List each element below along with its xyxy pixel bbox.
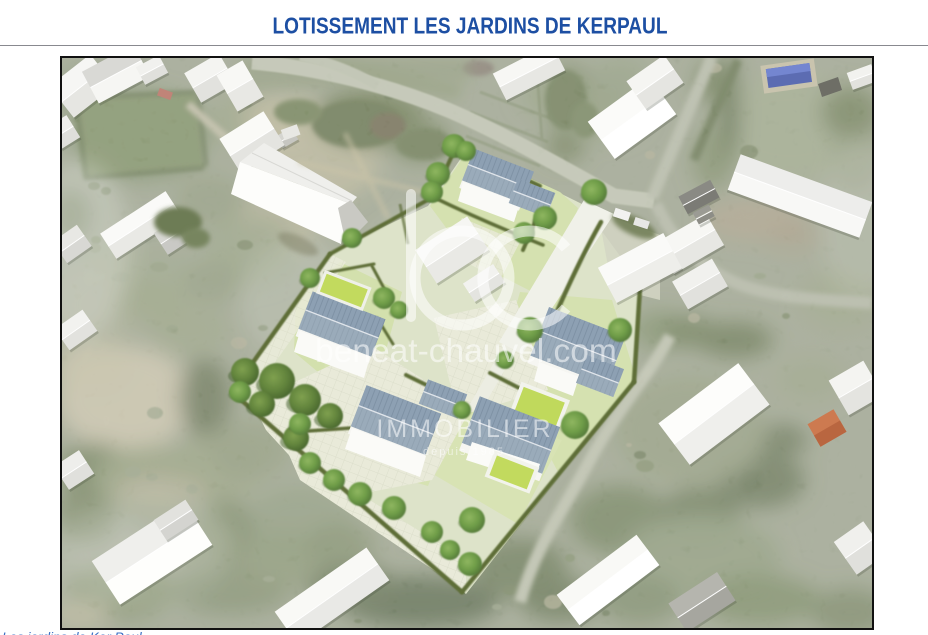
- svg-text:IMMOBILIER: IMMOBILIER: [376, 415, 553, 443]
- svg-text:LOTISSEMENT LES JARDINS DE KER: LOTISSEMENT LES JARDINS DE KERPAUL: [273, 13, 668, 39]
- svg-text:depuis 1985: depuis 1985: [423, 446, 505, 458]
- svg-text:beneat-chauvel.com: beneat-chauvel.com: [315, 333, 617, 370]
